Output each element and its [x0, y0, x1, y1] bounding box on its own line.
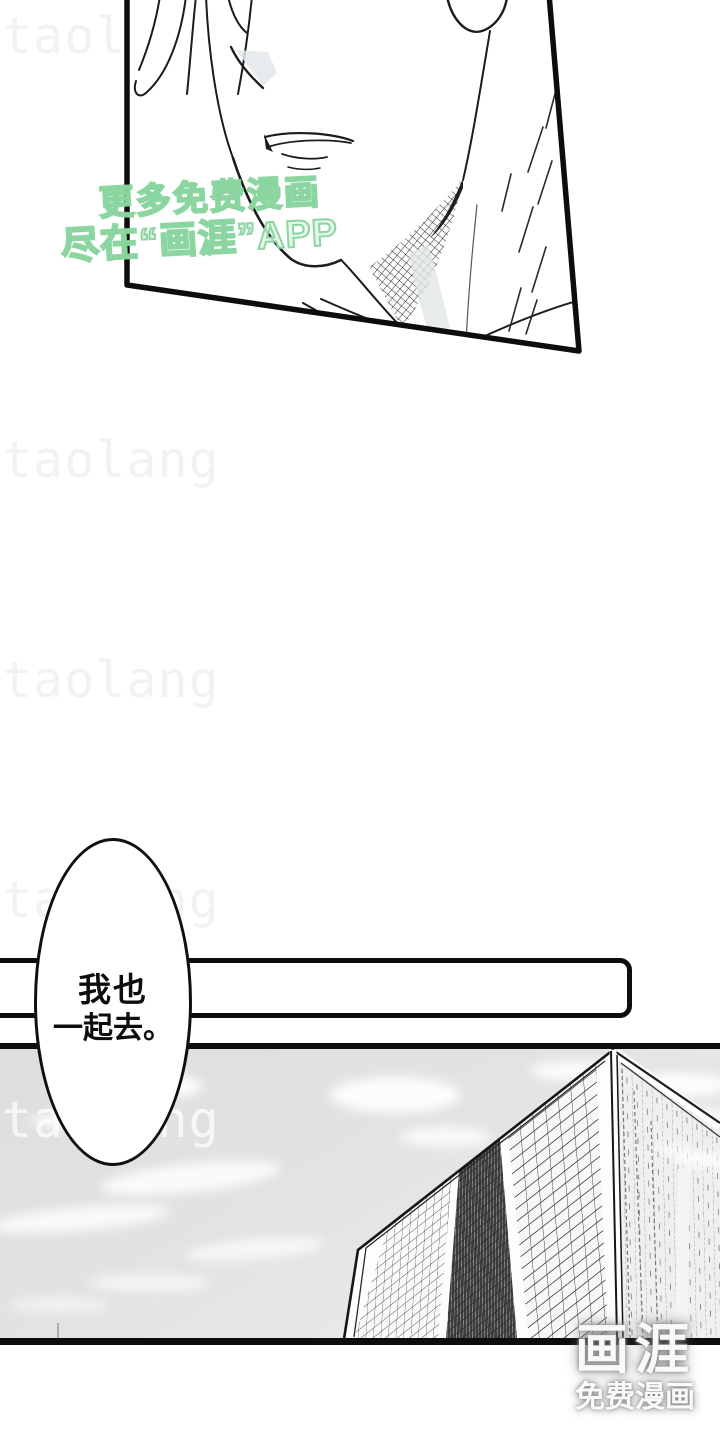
speech-line2: 一起去。	[53, 1010, 173, 1048]
tiled-watermark: taolang	[2, 432, 220, 488]
promo-watermark: 更多免费漫画 尽在“画涯”APP	[58, 173, 339, 268]
app-logo: 画涯 免费漫画	[560, 1322, 710, 1414]
cloud	[652, 1145, 696, 1155]
tiled-watermark: taolang	[2, 652, 220, 708]
comic-page[interactable]: taolang taolang taolang taolang taolang	[0, 0, 720, 1440]
app-logo-tagline: 免费漫画	[560, 1382, 710, 1414]
app-logo-title: 画涯	[560, 1322, 710, 1378]
speech-bubble: 我也 一起去。	[34, 838, 192, 1166]
speech-line1: 我也	[78, 970, 148, 1010]
